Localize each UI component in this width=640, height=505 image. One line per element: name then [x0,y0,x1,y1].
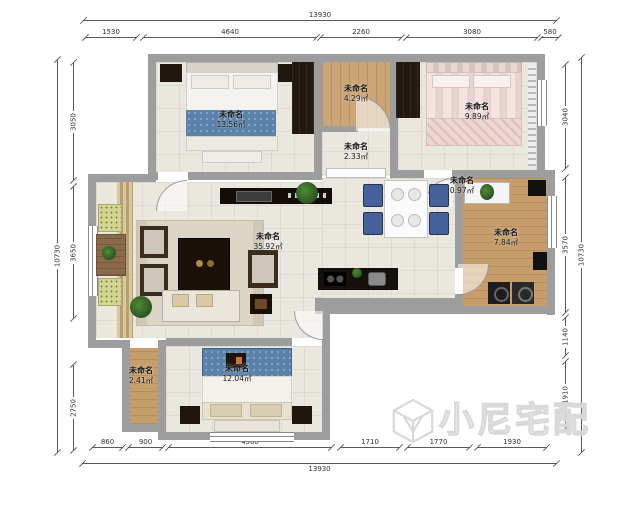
room-name: 未命名 [430,176,494,186]
wall-left-upper [148,54,156,182]
dim-bottom-seg-2: 900 [128,447,163,448]
window-bedroom-bottom [210,432,294,442]
dim-value: 1530 [100,29,122,36]
wall-bedroom-top [166,338,292,346]
dining-chair [363,184,383,207]
room-label-top-small: 未命名 4.29㎡ [324,84,388,104]
sink-icon [368,272,386,286]
pillow [233,75,271,89]
room-name: 未命名 [324,84,388,94]
coffee-table [178,238,230,292]
dim-value: 900 [137,439,154,446]
plant-icon [352,268,362,278]
sofa-pillow [196,294,213,307]
dim-value: 3050 [71,111,78,133]
dim-bottom-seg-6: 1930 [477,447,547,448]
dim-right-seg-2: 3570 [565,178,566,312]
room-area: 0.97㎡ [430,186,494,196]
room-area: 35.92㎡ [236,242,300,252]
dim-value: 1140 [563,326,570,348]
room-name: 未命名 [109,366,173,376]
dim-bottom-seg-3: 4560 [168,447,332,448]
wall-top [148,54,545,62]
dim-value: 3570 [563,234,570,256]
window-tr-bedroom [537,80,547,126]
planter-box-icon [98,204,122,232]
dim-value: 3650 [71,242,78,264]
wall-tl-bottom [188,172,322,180]
dim-value: 1710 [359,439,381,446]
wardrobe-icon [292,62,314,134]
dim-left-seg-1: 3050 [73,63,74,180]
bed-bench [214,420,280,432]
side-table-decor [255,299,267,309]
dim-value: 3040 [563,106,570,128]
cube-logo-icon [392,398,434,444]
dining-chair [429,212,449,235]
stove-icon [324,272,346,286]
room-label-right-room: 未命名 7.84㎡ [474,228,538,248]
dim-top-seg-1: 1530 [85,37,137,38]
dim-top-seg-5: 580 [541,37,559,38]
plate-icon [408,188,421,201]
dim-top-seg-4: 3080 [406,37,538,38]
dining-chair [363,212,383,235]
dim-value: 13930 [307,12,333,19]
room-area: 13.56㎡ [199,120,263,130]
room-label-tr-bedroom: 未命名 9.89㎡ [445,102,509,122]
bed-bench [202,151,262,163]
plate-icon [391,214,404,227]
bed-foot [186,136,278,151]
plant-icon [102,246,116,260]
room-label-entry: 未命名 0.97㎡ [430,176,494,196]
pillow [210,404,242,417]
cabinet-icon [533,252,547,270]
nightstand-icon [292,406,312,424]
plate-icon [408,214,421,227]
armchair-cushion [252,255,274,283]
room-name: 未命名 [236,232,300,242]
pillow [191,75,229,89]
wall-top-small-bottom [322,126,358,132]
dim-top-total: 13930 [83,20,557,21]
dim-left-total: 10730 [57,60,58,452]
sofa-pillow [172,294,189,307]
wall-sep-tl [314,54,322,180]
dim-top-seg-3: 2260 [320,37,402,38]
room-label-hallway: 未命名 2.33㎡ [324,142,388,162]
dim-value: 10730 [55,243,62,269]
dim-right-seg-3: 1140 [565,318,566,355]
dim-value: 2260 [350,29,372,36]
room-area: 9.89㎡ [445,112,509,122]
dim-value: 860 [99,439,116,446]
wardrobe-icon [396,62,420,118]
dim-top-seg-2: 4640 [143,37,317,38]
dim-value: 1770 [428,439,450,446]
dim-value: 13930 [306,466,332,473]
wall-bedroom-right [322,310,330,440]
bed-blanket [426,118,522,146]
dim-bottom-seg-5: 1770 [407,447,470,448]
dim-bottom-seg-1: 860 [92,447,123,448]
dim-value: 2750 [71,397,78,419]
dim-value: 10730 [579,242,586,268]
room-label-bl-room: 未命名 2.41㎡ [109,366,173,386]
pillow [473,75,511,88]
plate-icon [391,188,404,201]
table-decor [207,260,214,267]
plant-icon [130,296,152,318]
room-area: 4.29㎡ [324,94,388,104]
wall-tl-bottom-stub [148,172,158,180]
room-name: 未命名 [474,228,538,238]
room-name: 未命名 [445,102,509,112]
room-area: 2.33㎡ [324,152,388,162]
room-area: 12.04㎡ [205,374,269,384]
wall-kitchen-bottom [315,298,463,314]
window-right-room [547,196,557,248]
plant-icon [296,182,318,204]
room-name: 未命名 [205,364,269,374]
wall-right-room-bottom [455,306,555,314]
table-decor [196,260,203,267]
room-area: 7.84㎡ [474,238,538,248]
dim-bottom-total: 13930 [82,463,557,464]
dim-bottom-seg-4: 1710 [340,447,400,448]
room-name: 未命名 [324,142,388,152]
tv-icon [236,191,272,202]
room-label-bottom-bedroom: 未命名 12.04㎡ [205,364,269,384]
floor-plan-canvas: 13930 1530 4640 2260 3080 580 860 900 45… [0,0,640,505]
dim-right-seg-1: 3040 [565,65,566,168]
wall-bl-right [158,340,166,440]
washer-door [518,287,533,302]
dim-right-total: 10730 [581,58,582,452]
watermark: 小尼宅配 [392,398,591,444]
dim-value: 1910 [563,384,570,406]
cabinet-icon [528,180,546,196]
pillow [250,404,282,417]
dim-value: 4640 [219,29,241,36]
pillow [432,75,470,88]
room-label-tl-bedroom: 未命名 13.56㎡ [199,110,263,130]
nightstand-icon [160,64,182,82]
nightstand-icon [180,406,200,424]
room-label-living: 未命名 35.92㎡ [236,232,300,252]
radiator-icon [528,66,536,166]
room-area: 2.41㎡ [109,376,173,386]
room-name: 未命名 [199,110,263,120]
planter-box-icon [98,278,122,306]
armchair-cushion [144,230,164,254]
dim-left-seg-2: 3650 [73,187,74,318]
dim-right-seg-4: 1910 [565,362,566,428]
dim-value: 3080 [461,29,483,36]
wall-dining-right-stub [455,294,463,306]
dining-table [384,180,428,238]
wall-step-left [88,174,156,182]
armchair-cushion [144,268,164,292]
bed-decor-accent [236,357,242,364]
dim-value: 1930 [501,439,523,446]
threshold-hallway [326,168,386,178]
watermark-text: 小尼宅配 [439,404,591,439]
dim-value: 580 [541,29,558,36]
washer-door [494,287,509,302]
dim-left-seg-3: 2750 [73,365,74,450]
